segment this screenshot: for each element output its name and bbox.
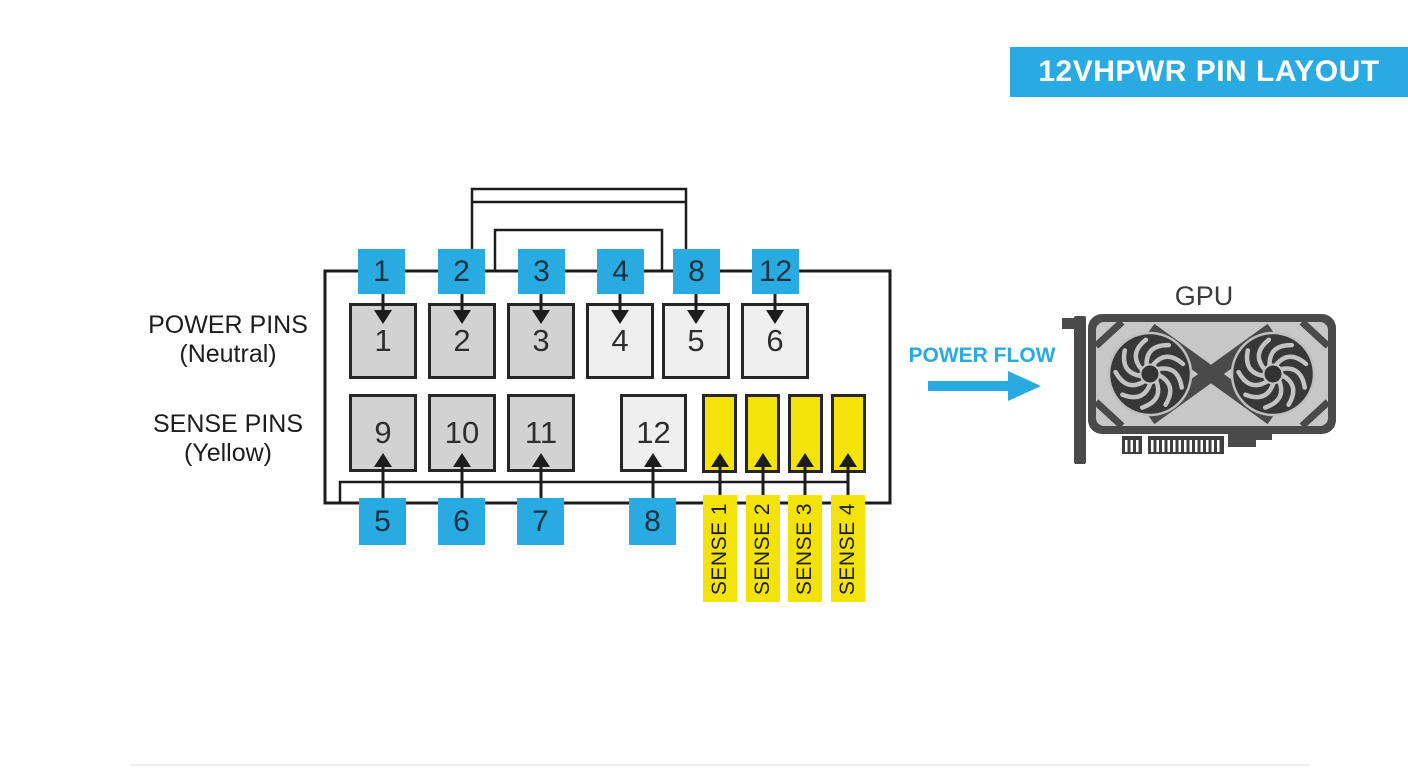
arrow-up-to-pin-11 [532,453,550,498]
arrow-down-to-pin-1 [374,294,392,324]
legend-sense-line2: (Yellow) [106,439,350,468]
arrow-up-to-pin-9 [374,453,392,498]
gpu-shroud-x-band [1150,330,1272,418]
arrow-up-to-sense-3 [796,453,814,495]
pin-box-9: 9 [349,394,417,472]
wire-label-bottom-8: 8 [629,498,676,545]
sense-pin-box-3 [788,394,823,473]
gpu-bracket-tab [1062,318,1080,329]
gpu-step-tab [1228,432,1256,447]
arrow-up-to-sense-2 [754,453,772,495]
connector-inner-lip-line [340,482,847,502]
wire-label-top-3: 3 [518,249,565,294]
arrow-down-to-pin-6 [766,294,784,324]
wire-label-bottom-5: 5 [359,498,406,545]
diagram-linework [0,0,1408,768]
gpu-title: GPU [1134,281,1274,312]
wire-label-top-2: 2 [438,249,485,294]
gpu-pcie-key [1122,436,1142,454]
sense-label-2: SENSE 2 [746,495,780,602]
pin-box-5: 5 [662,303,730,379]
sense-label-4: SENSE 4 [831,495,865,602]
arrow-up-to-pin-12 [644,453,662,498]
connector-outline [325,271,890,503]
gpu-shroud-corner-accents [1096,322,1328,426]
wire-label-bottom-7: 7 [517,498,564,545]
arrow-down-to-pin-3 [532,294,550,324]
wire-label-top-4: 4 [597,249,644,294]
sense-pin-box-2 [745,394,780,473]
gpu-illustration [1062,314,1336,464]
gpu-body [1088,314,1336,434]
legend-sense-line1: SENSE PINS [106,410,350,439]
bottom-artifact-line [130,764,1310,766]
fan-icon [1232,333,1314,415]
legend-power-pins: POWER PINS (Neutral) [106,311,350,370]
sense-label-3: SENSE 3 [788,495,822,602]
arrow-up-to-sense-1 [711,453,729,495]
bridge-inner-line [495,230,662,271]
arrow-up-to-pin-10 [453,453,471,498]
gpu-step-tab-small [1256,432,1272,440]
fan-icon [1109,333,1191,415]
arrow-up-to-sense-4 [839,453,857,495]
arrow-down-to-pin-2 [453,294,471,324]
pin-box-4: 4 [586,303,654,379]
arrow-down-to-pin-5 [687,294,705,324]
power-flow-label: POWER FLOW [906,344,1058,368]
sense-pin-box-4 [831,394,866,473]
pin-box-2: 2 [428,303,496,379]
arrow-down-to-pin-4 [611,294,629,324]
power-flow-arrow-icon [928,371,1041,401]
bridge-outer-line [472,189,686,252]
legend-power-line2: (Neutral) [106,340,350,369]
pin-box-10: 10 [428,394,496,472]
wire-label-bottom-6: 6 [438,498,485,545]
gpu-bracket-bar [1074,316,1086,464]
wire-label-top-12: 12 [752,249,799,294]
arrows-layer [0,0,1408,768]
wire-label-top-1: 1 [358,249,405,294]
legend-power-line1: POWER PINS [106,311,350,340]
pin-box-1: 1 [349,303,417,379]
gpu-pcie-fingers [1148,436,1224,454]
pin-box-3: 3 [507,303,575,379]
pin-layout-diagram: 12VHPWR PIN LAYOUT POWER PINS (Neutral) … [0,0,1408,768]
sense-label-1: SENSE 1 [703,495,737,602]
pin-box-12: 12 [620,394,687,472]
wire-label-top-8: 8 [673,249,720,294]
title-banner: 12VHPWR PIN LAYOUT [1010,47,1408,97]
pin-box-11: 11 [507,394,575,472]
sense-pin-box-1 [702,394,737,473]
legend-sense-pins: SENSE PINS (Yellow) [106,410,350,469]
gpu-shroud [1096,322,1328,426]
pin-box-6: 6 [741,303,809,379]
page-title: 12VHPWR PIN LAYOUT [1038,55,1379,89]
